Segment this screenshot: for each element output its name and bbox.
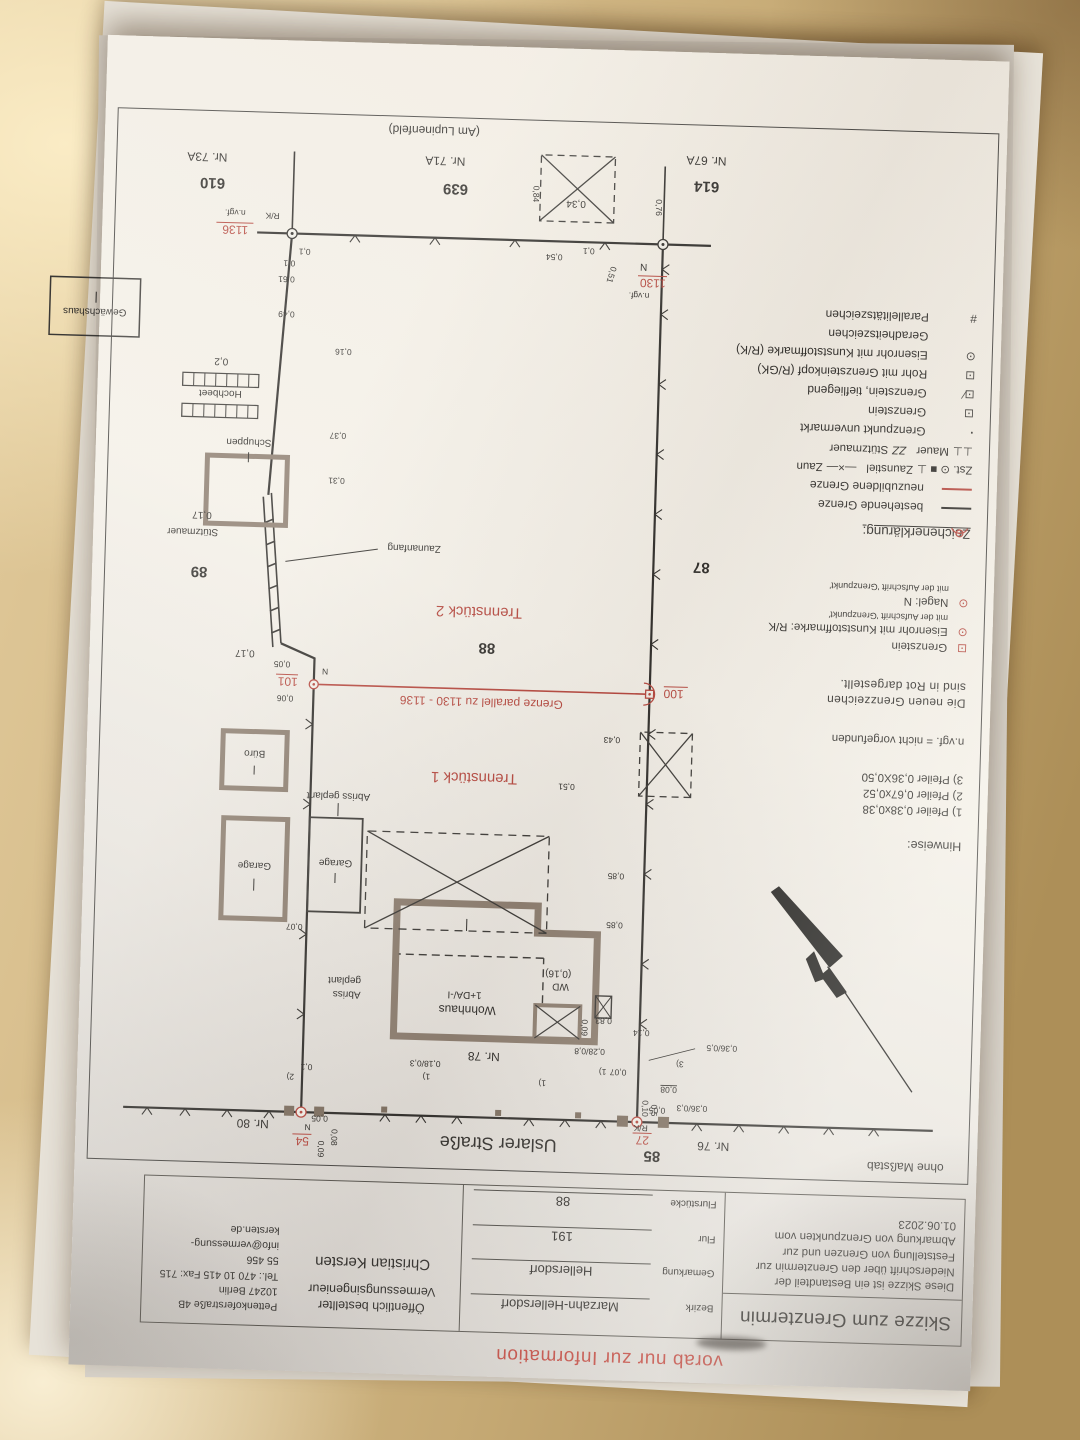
new-boundary: Grenze parallel zu 1130 - 1136	[313, 684, 649, 714]
svg-text:n.vgf.: n.vgf.	[225, 207, 246, 218]
svg-text:0,85: 0,85	[606, 920, 623, 930]
eisenrohr-icon: ⊙	[928, 349, 976, 364]
svg-text:N: N	[304, 1122, 310, 1132]
house-nr-71a: Nr. 71A	[425, 153, 465, 168]
svg-text:0,84: 0,84	[531, 186, 541, 203]
hochbeet-wall	[183, 372, 259, 387]
grenzstein-icon: ⊡	[926, 406, 974, 421]
schuppen-outline	[205, 455, 287, 525]
parcel-85: 85	[643, 1147, 660, 1164]
abriss-house-label: Abriss	[333, 988, 361, 1000]
svg-text:27: 27	[635, 1133, 649, 1147]
title-block: Skizze zum Grenztermin Diese Skizze ist …	[140, 1174, 966, 1346]
street-label: Uslarer Straße	[439, 1132, 557, 1155]
svg-text:0,54: 0,54	[546, 252, 563, 262]
svg-text:N: N	[322, 667, 328, 677]
red-symbols-note: Die neuen Grenzzeichen sind in Rot darge…	[695, 671, 966, 711]
svg-text:0,08: 0,08	[329, 1129, 339, 1146]
svg-text:0,85: 0,85	[607, 871, 624, 881]
svg-text:0,76: 0,76	[654, 199, 664, 216]
parcel-89: 89	[190, 563, 207, 580]
field-flurstuecke: Flurstücke 88	[473, 1189, 717, 1230]
svg-text:0,61: 0,61	[278, 274, 295, 284]
parcel-639: 639	[443, 180, 469, 198]
street-label-bottom: (Am Lupinenfeld)	[388, 122, 480, 139]
svg-text:2): 2)	[286, 1072, 294, 1082]
svg-text:0,16: 0,16	[335, 347, 352, 357]
stuetzmauer-icon: ΖΖ	[892, 444, 906, 456]
point-101: 101 N 0,05 0,06	[272, 659, 328, 705]
field-flur: Flur 191	[472, 1224, 716, 1265]
point-icon: ·	[925, 425, 973, 440]
svg-text:0,43: 0,43	[603, 735, 620, 745]
title-column: Skizze zum Grenztermin Diese Skizze ist …	[721, 1193, 965, 1346]
svg-text:0,14: 0,14	[633, 1028, 650, 1038]
trennstueck-1: Trennstück 1	[431, 768, 518, 788]
zaunstiel-icon: Zst. ⊙ ■ ⊥	[917, 463, 973, 479]
svg-text:0,28/0,8: 0,28/0,8	[574, 1046, 605, 1057]
svg-text:0,31: 0,31	[328, 476, 345, 486]
svg-text:0,09: 0,09	[579, 1019, 589, 1036]
buero-label: Büro	[244, 747, 266, 759]
demolition-zone	[365, 831, 550, 933]
svg-text:0,1: 0,1	[582, 246, 594, 256]
hochbeet-measure: 0,2	[214, 355, 229, 366]
svg-text:1136: 1136	[222, 222, 249, 237]
note-item: 1) Pfeiler 0,38x0,38	[692, 798, 962, 818]
svg-text:R/K: R/K	[265, 211, 280, 221]
svg-text:0,08: 0,08	[660, 1085, 677, 1095]
parcel-fields: Bezirk Marzahn-Hellersdorf Gemarkung Hel…	[459, 1185, 725, 1339]
document-title: Skizze zum Grenztermin	[722, 1293, 962, 1346]
svg-text:0,1: 0,1	[300, 1062, 312, 1072]
north-arrow	[765, 886, 918, 1092]
abriss-house-label: geplant	[328, 974, 361, 986]
svg-text:100: 100	[663, 687, 684, 702]
svg-text:0,34: 0,34	[566, 198, 586, 210]
svg-text:0,37: 0,37	[329, 431, 346, 441]
marker-definitions: ⊡ Grenzstein ⊙ Eisenrohr mit Kunststoffm…	[687, 573, 969, 655]
mauer-icon: ⊥⊥	[953, 445, 973, 460]
surveyor-name: Christian Kersten	[290, 1252, 454, 1274]
address-phone: Tel.: 470 10 415 Fax: 715 55 456	[150, 1249, 279, 1283]
svg-text:1): 1)	[599, 1067, 607, 1077]
legend: Zeichenerklärung: bestehende Grenze neuz…	[680, 301, 977, 542]
gewaechshaus-label: Gewächshaus	[63, 305, 127, 318]
svg-text:0,07: 0,07	[286, 922, 303, 932]
abriss-garage-label: Abriss geplant	[306, 789, 370, 802]
buero-outline	[222, 731, 288, 790]
svg-text:0,49: 0,49	[278, 309, 295, 319]
abbreviation-note: n.vgf. = nicht vorgefunden	[694, 728, 964, 748]
house-nr-76: Nr. 76	[697, 1139, 730, 1154]
grenzstein-icon: ⊡	[947, 641, 967, 656]
crossed-shed: 0,34	[540, 155, 616, 223]
neighbour-garage-label: Garage	[237, 859, 271, 871]
field-label: Bezirk	[649, 1299, 713, 1314]
svg-text:1): 1)	[538, 1078, 546, 1088]
address-email: info@vermessung-kersten.de	[151, 1218, 280, 1252]
preliminary-stamp: vorab nur zur Information	[495, 1343, 723, 1372]
zaun-icon: —×—	[826, 461, 856, 474]
red-line-icon	[924, 482, 972, 497]
svg-text:0,36/0,5: 0,36/0,5	[706, 1043, 737, 1054]
svg-text:n.vgf.: n.vgf.	[628, 290, 649, 301]
zaunanfang-label: Zaunanfang	[387, 541, 441, 554]
svg-text:0,83: 0,83	[595, 1016, 612, 1026]
field-gemarkung: Gemarkung Hellersdorf	[471, 1259, 715, 1300]
house-nr-67a: Nr. 67A	[686, 153, 726, 168]
hochbeet-label: Hochbeet	[199, 387, 242, 399]
field-bezirk: Bezirk Marzahn-Hellersdorf	[470, 1293, 714, 1334]
field-label: Flurstücke	[652, 1195, 716, 1210]
nagel-icon: ⊙	[948, 596, 968, 611]
parcel-88: 88	[478, 639, 495, 656]
svg-text:0,18/0,3: 0,18/0,3	[409, 1058, 440, 1069]
document-description: Diese Skizze ist ein Bestandteil der Nie…	[723, 1193, 965, 1300]
surveyor-address: Pettenkoferstraße 4B 10247 Berlin Tel.: …	[141, 1176, 287, 1326]
svg-text:1130: 1130	[639, 276, 666, 291]
field-value: 88	[473, 1189, 652, 1211]
svg-text:R/K: R/K	[633, 1123, 648, 1133]
rohr-icon: ⊡	[927, 368, 975, 383]
svg-text:0,05: 0,05	[311, 1113, 328, 1123]
fence-posts	[284, 1104, 669, 1128]
wohnhaus-storeys: 1+DA/-I	[447, 988, 481, 1000]
parallel-icon: #	[929, 311, 977, 326]
garage-label: Garage	[318, 857, 352, 869]
svg-text:0,51: 0,51	[558, 782, 575, 792]
grenzstein-tief-icon: ⊡∕	[926, 387, 974, 402]
boundary-points: 27 R/K 54 N 100	[189, 207, 702, 1159]
svg-text:0,09: 0,09	[316, 1141, 326, 1158]
svg-text:0,51: 0,51	[605, 265, 619, 284]
svg-text:0,10: 0,10	[640, 1100, 650, 1117]
new-boundary-label: Grenze parallel zu 1130 - 1136	[399, 693, 563, 712]
parcel-614: 614	[693, 177, 719, 195]
svg-text:101: 101	[277, 674, 298, 689]
svg-text:0,05: 0,05	[273, 659, 290, 669]
retaining-wall	[259, 493, 286, 648]
black-line-icon	[923, 501, 971, 516]
surveyor-block: Öffentlich bestellter Vermessungsingenie…	[283, 1180, 463, 1331]
svg-text:0,1: 0,1	[283, 258, 295, 268]
survey-sketch-paper: vorab nur zur Information Skizze zum Gre…	[68, 35, 1009, 1391]
hochbeet-wall	[182, 403, 258, 418]
house-nr-80: Nr. 80	[236, 1116, 269, 1131]
svg-text:0,06: 0,06	[276, 693, 293, 703]
svg-text:0,07: 0,07	[609, 1067, 626, 1077]
house-nr-73a: Nr. 73A	[187, 149, 227, 164]
wd-label: WD	[552, 981, 569, 992]
stuetzmauer-label: Stützmauer	[166, 525, 218, 538]
svg-text:0,1: 0,1	[298, 247, 310, 257]
plan-frame: ohne Maßstab	[87, 107, 1000, 1185]
svg-text:1): 1)	[422, 1072, 430, 1082]
svg-text:0,36/0,3: 0,36/0,3	[676, 1103, 707, 1114]
point-1136: 1136 R/K n.vgf. 0,1 0,1	[215, 207, 312, 269]
svg-text:N: N	[640, 261, 648, 272]
field-label: Flur	[651, 1229, 715, 1244]
eisenrohr-icon: ⊙	[947, 625, 967, 640]
wd-measure: (0,16)	[545, 967, 571, 979]
notes-block: Hinweise: 1) Pfeiler 0,38x0,38 2) Pfeile…	[691, 671, 966, 853]
field-label: Gemarkung	[650, 1264, 714, 1279]
geradheitszeichen-icon	[928, 337, 976, 338]
wohnhaus-label: Wohnhaus	[438, 1002, 496, 1018]
svg-text:0,17: 0,17	[192, 509, 212, 521]
schuppen-label: Schuppen	[226, 436, 271, 448]
trennstueck-2: Trennstück 2	[436, 602, 523, 622]
svg-text:3): 3)	[676, 1059, 684, 1069]
house-nr-78: Nr. 78	[467, 1049, 500, 1064]
svg-text:0,17: 0,17	[235, 647, 255, 659]
svg-text:54: 54	[295, 1134, 309, 1148]
parcel-610: 610	[200, 174, 226, 192]
